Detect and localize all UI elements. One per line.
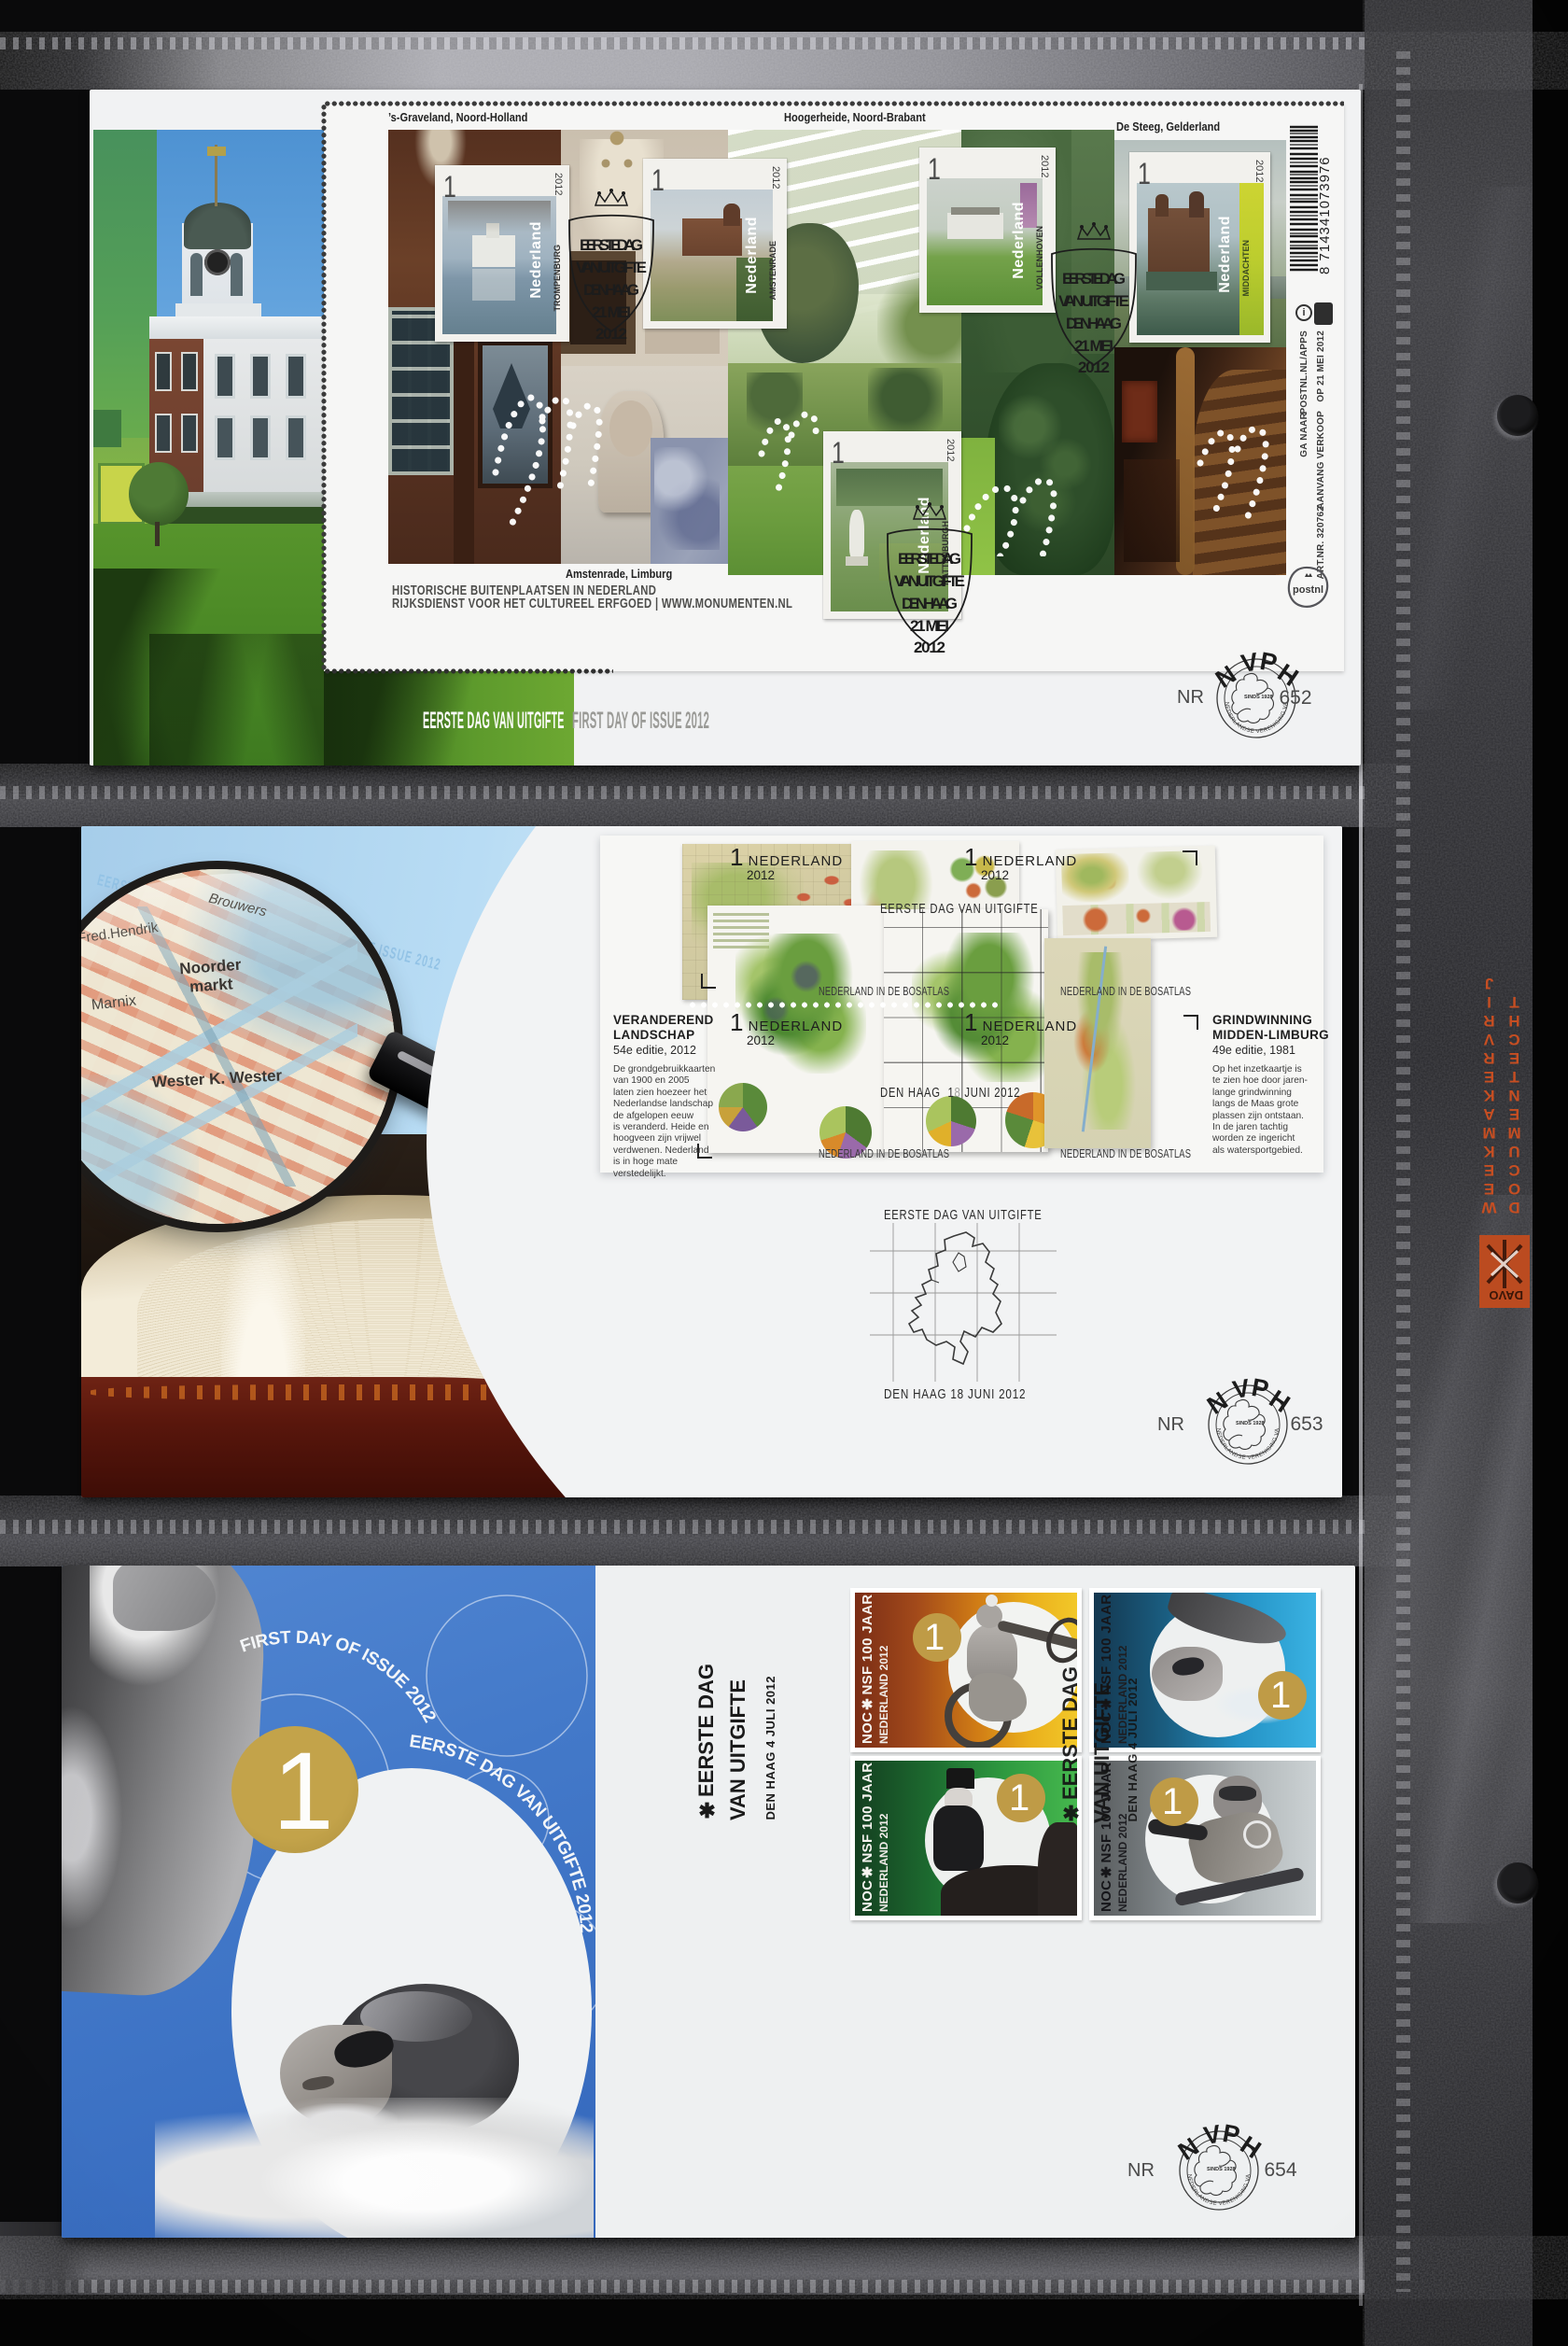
svg-text:NR: NR bbox=[1127, 2160, 1155, 2181]
svg-text:VAN UITGIFTE: VAN UITGIFTE bbox=[894, 572, 965, 590]
svg-text:NEDERLANDSE VERENIGING VAN POS: NEDERLANDSE VERENIGING VAN POSTZEGELHAND… bbox=[1186, 2167, 1252, 2207]
svg-text:654: 654 bbox=[1264, 2159, 1296, 2181]
svg-text:P: P bbox=[1221, 2119, 1242, 2150]
svg-text:EERSTE DAG VAN UITGIFTE 2012: EERSTE DAG VAN UITGIFTE 2012 bbox=[408, 1732, 595, 1933]
svg-text:SINDS 1928: SINDS 1928 bbox=[1236, 1421, 1265, 1426]
svg-text:EERSTE DAG: EERSTE DAG bbox=[1062, 270, 1126, 288]
svg-text:21 MEI: 21 MEI bbox=[910, 617, 949, 635]
svg-text:FIRST DAY OF ISSUE 2012: FIRST DAY OF ISSUE 2012 bbox=[238, 1628, 440, 1726]
svg-text:postnl: postnl bbox=[1293, 584, 1323, 596]
svg-text:VAN UITGIFTE: VAN UITGIFTE bbox=[576, 259, 647, 276]
svg-text:DAVO: DAVO bbox=[1489, 1288, 1523, 1302]
svg-text:NR: NR bbox=[1157, 1414, 1184, 1435]
svg-text:8 714341073976: 8 714341073976 bbox=[1317, 156, 1333, 274]
svg-text:VAN UITGIFTE: VAN UITGIFTE bbox=[1058, 292, 1129, 310]
svg-text:653: 653 bbox=[1290, 1413, 1323, 1435]
svg-text:NEDERLANDSE VERENIGING VAN POS: NEDERLANDSE VERENIGING VAN POSTZEGELHAND… bbox=[1215, 1421, 1281, 1461]
svg-text:DEN HAAG: DEN HAAG bbox=[902, 595, 958, 612]
svg-text:2012: 2012 bbox=[914, 639, 945, 656]
svg-text:NR: NR bbox=[1177, 687, 1204, 708]
svg-text:EERSTE DAG: EERSTE DAG bbox=[580, 236, 643, 254]
svg-text:SINDS 1928: SINDS 1928 bbox=[1244, 695, 1273, 700]
svg-text:H: H bbox=[1236, 2130, 1267, 2164]
svg-text:652: 652 bbox=[1279, 687, 1311, 709]
svg-text:SINDS 1928: SINDS 1928 bbox=[1207, 2167, 1236, 2172]
svg-text:P: P bbox=[1250, 1373, 1271, 1404]
svg-text:DEN HAAG: DEN HAAG bbox=[583, 281, 639, 299]
